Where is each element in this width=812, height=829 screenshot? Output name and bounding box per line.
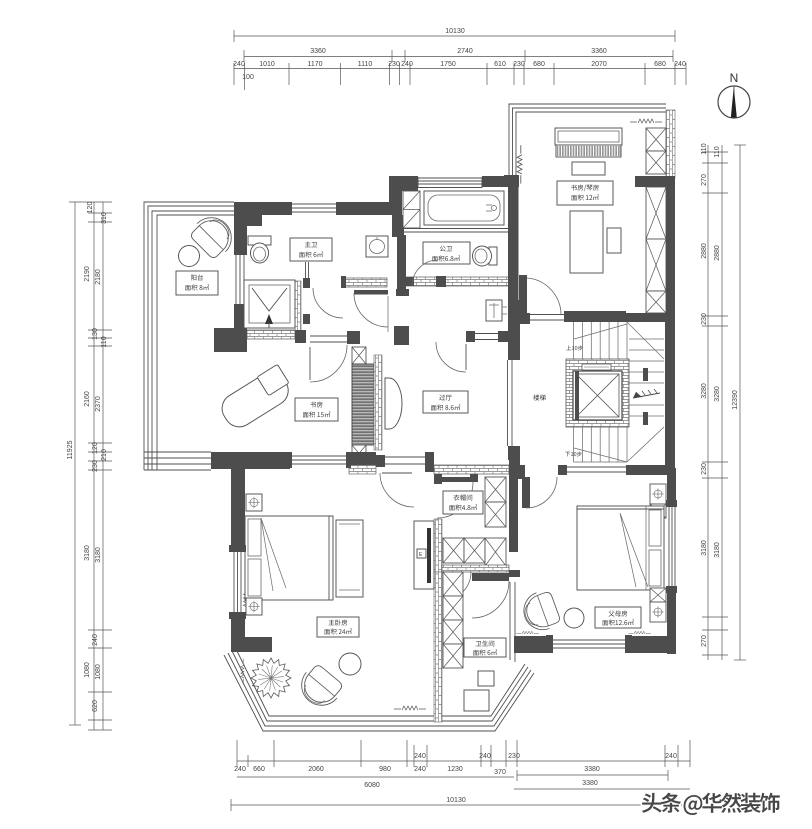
svg-text:10130: 10130 <box>445 28 465 35</box>
svg-text:1230: 1230 <box>447 766 463 773</box>
svg-text:3180: 3180 <box>714 542 721 558</box>
svg-text:3180: 3180 <box>701 540 708 556</box>
svg-text:2880: 2880 <box>714 245 721 261</box>
svg-text:210: 210 <box>101 449 108 461</box>
svg-text:2190: 2190 <box>84 266 91 282</box>
svg-text:620: 620 <box>92 700 99 712</box>
svg-text:120: 120 <box>87 202 94 214</box>
svg-text:240: 240 <box>414 753 426 760</box>
svg-text:2160: 2160 <box>84 391 91 407</box>
svg-text:1110: 1110 <box>358 61 373 68</box>
svg-text:3380: 3380 <box>584 766 600 773</box>
svg-text:2740: 2740 <box>457 48 473 55</box>
svg-text:1010: 1010 <box>259 61 275 68</box>
svg-text:230: 230 <box>513 61 525 68</box>
svg-text:240: 240 <box>665 753 677 760</box>
svg-text:11925: 11925 <box>67 440 74 459</box>
svg-text:3280: 3280 <box>714 386 721 402</box>
svg-text:370: 370 <box>494 769 506 776</box>
svg-text:130: 130 <box>92 328 99 340</box>
svg-text:6080: 6080 <box>364 782 380 789</box>
svg-text:680: 680 <box>533 61 545 68</box>
svg-text:230: 230 <box>388 61 400 68</box>
svg-text:240: 240 <box>674 61 686 68</box>
svg-text:110: 110 <box>701 143 708 154</box>
svg-text:110: 110 <box>101 336 108 347</box>
svg-text:230: 230 <box>508 753 520 760</box>
svg-text:230: 230 <box>701 313 708 325</box>
svg-text:2070: 2070 <box>591 61 607 68</box>
svg-text:270: 270 <box>701 635 708 647</box>
svg-text:1750: 1750 <box>440 61 456 68</box>
svg-text:1080: 1080 <box>95 664 102 680</box>
svg-text:3380: 3380 <box>582 780 598 787</box>
svg-text:3180: 3180 <box>95 547 102 563</box>
svg-text:240: 240 <box>401 61 413 68</box>
svg-text:3360: 3360 <box>310 48 326 55</box>
svg-text:120: 120 <box>92 442 99 454</box>
svg-text:12390: 12390 <box>732 390 739 410</box>
svg-text:240: 240 <box>92 634 99 646</box>
svg-text:310: 310 <box>101 212 108 224</box>
svg-text:980: 980 <box>379 766 391 773</box>
svg-text:1080: 1080 <box>84 662 91 678</box>
svg-text:2370: 2370 <box>95 396 102 412</box>
svg-text:2180: 2180 <box>95 269 102 285</box>
svg-text:240: 240 <box>234 766 246 773</box>
svg-text:270: 270 <box>701 174 708 186</box>
svg-text:110: 110 <box>714 146 721 157</box>
svg-text:3180: 3180 <box>84 545 91 561</box>
svg-text:610: 610 <box>494 61 506 68</box>
svg-text:3360: 3360 <box>591 48 607 55</box>
svg-text:10130: 10130 <box>446 797 466 804</box>
svg-text:240: 240 <box>233 61 245 68</box>
svg-text:230: 230 <box>701 463 708 475</box>
svg-text:680: 680 <box>654 61 666 68</box>
svg-text:3280: 3280 <box>701 383 708 399</box>
svg-text:N: N <box>730 71 739 85</box>
svg-text:230: 230 <box>92 460 99 472</box>
svg-text:240: 240 <box>414 766 426 773</box>
svg-text:2060: 2060 <box>308 766 324 773</box>
svg-text:2880: 2880 <box>701 243 708 259</box>
svg-text:660: 660 <box>253 766 265 773</box>
svg-text:100: 100 <box>242 74 254 81</box>
svg-text:1170: 1170 <box>307 61 322 68</box>
